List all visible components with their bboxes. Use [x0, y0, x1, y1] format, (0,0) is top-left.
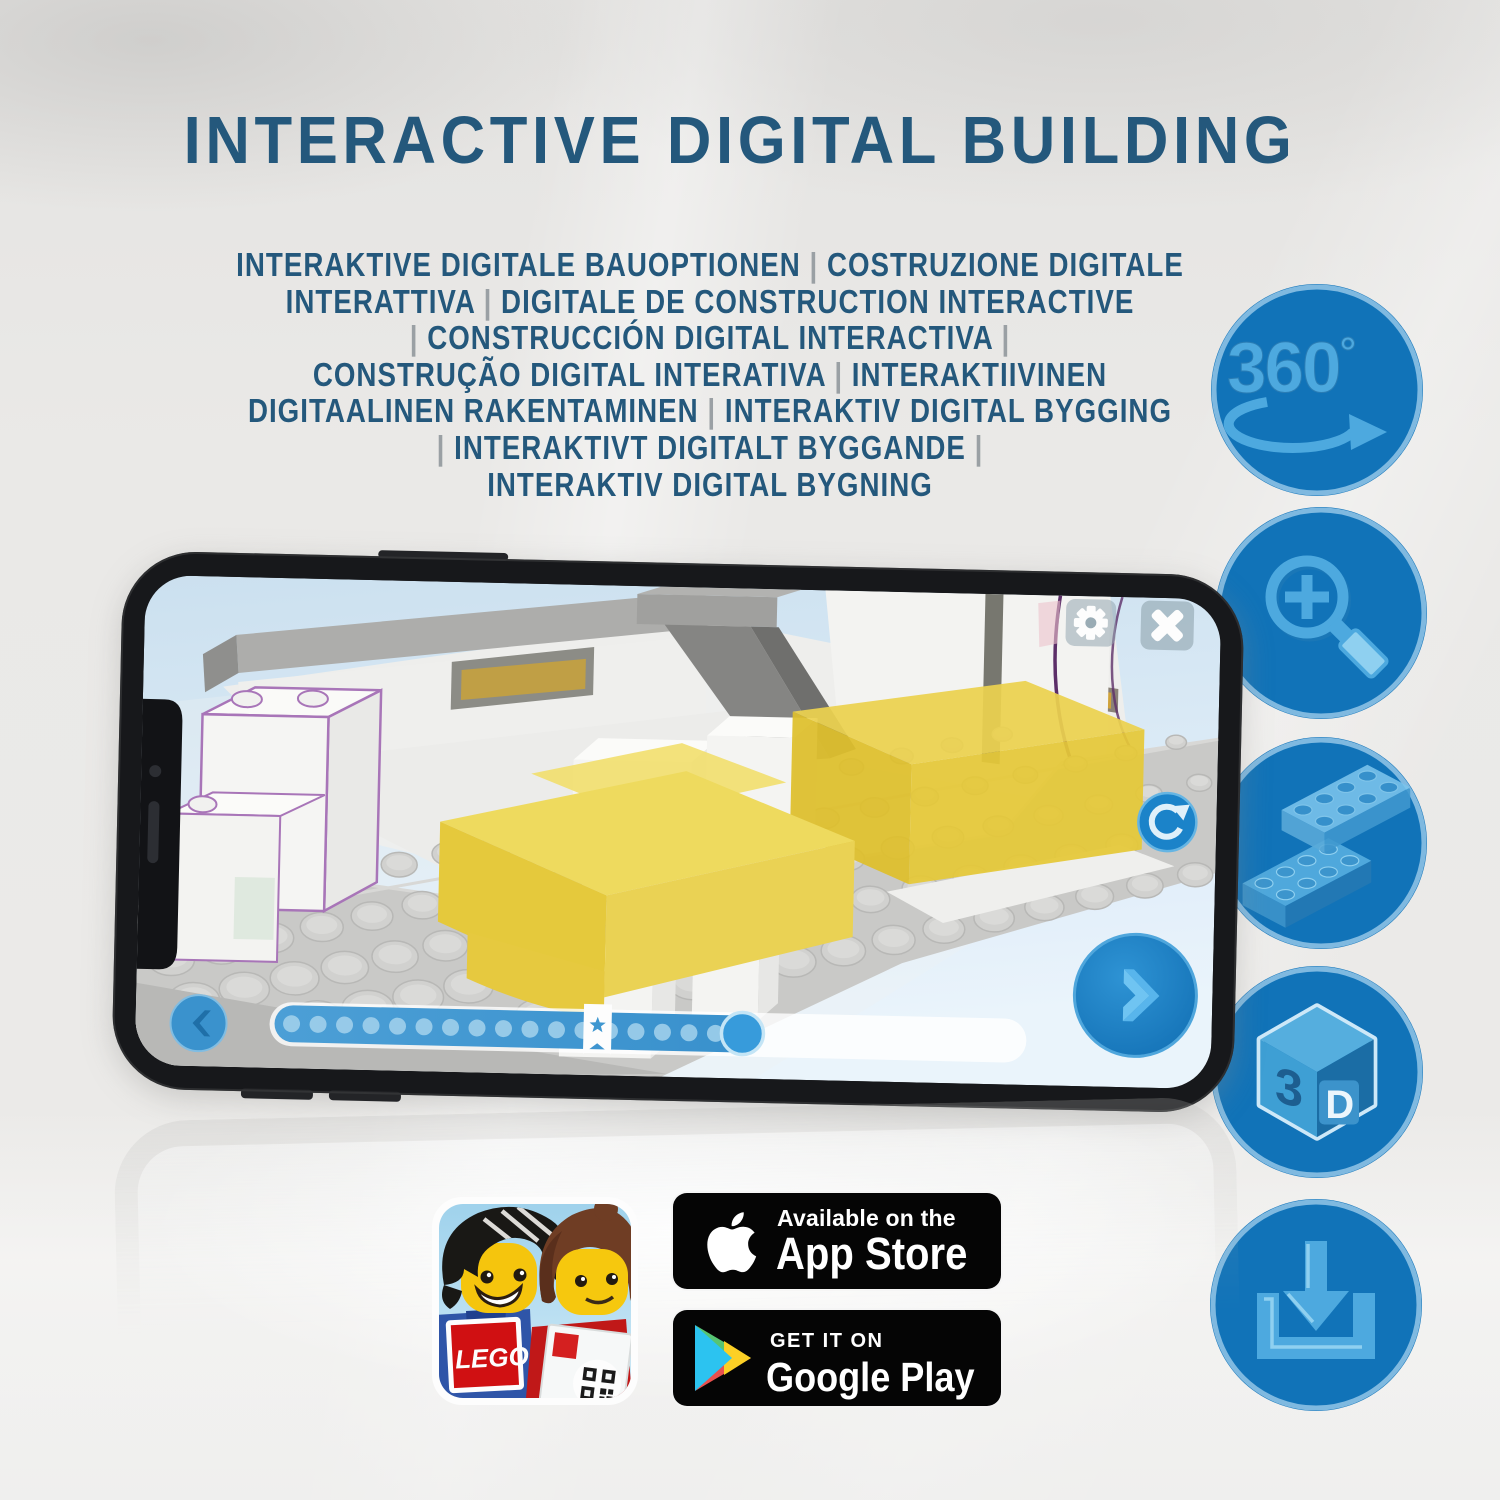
- svg-text:LEGO: LEGO: [454, 1341, 529, 1375]
- svg-text:360°: 360°: [1227, 328, 1354, 408]
- svg-text:D: D: [1325, 1083, 1354, 1127]
- svg-text:3: 3: [1275, 1056, 1303, 1119]
